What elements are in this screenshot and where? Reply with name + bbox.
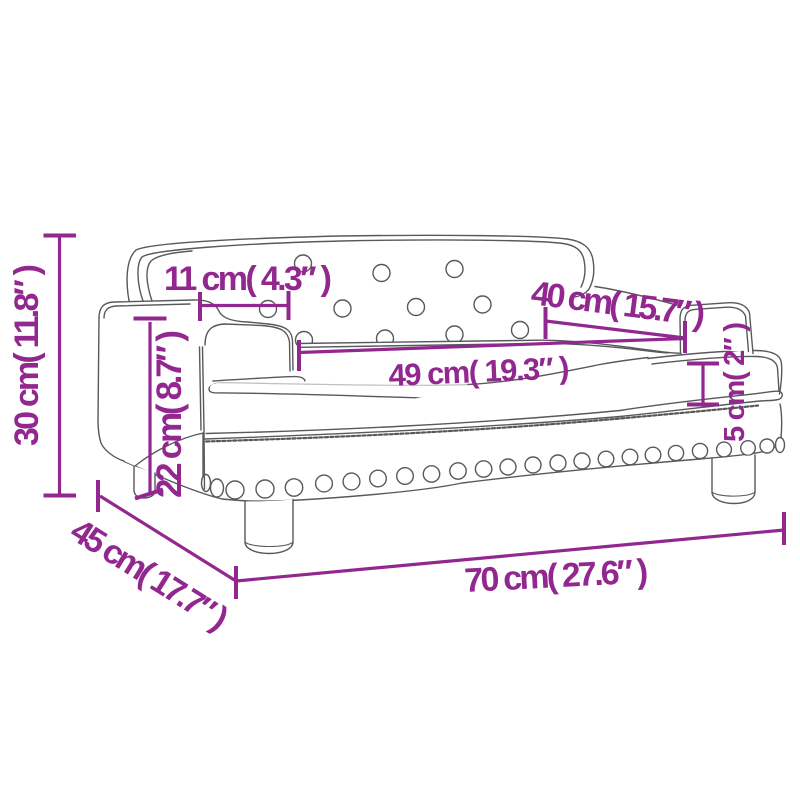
svg-text:11 cm( 4.3″ ): 11 cm( 4.3″ ) xyxy=(164,260,332,298)
svg-text:5 cm( 2″ ): 5 cm( 2″ ) xyxy=(719,322,751,442)
svg-text:22 cm( 8.7″ ): 22 cm( 8.7″ ) xyxy=(150,330,189,498)
svg-text:30 cm( 11.8″ ): 30 cm( 11.8″ ) xyxy=(8,264,46,446)
